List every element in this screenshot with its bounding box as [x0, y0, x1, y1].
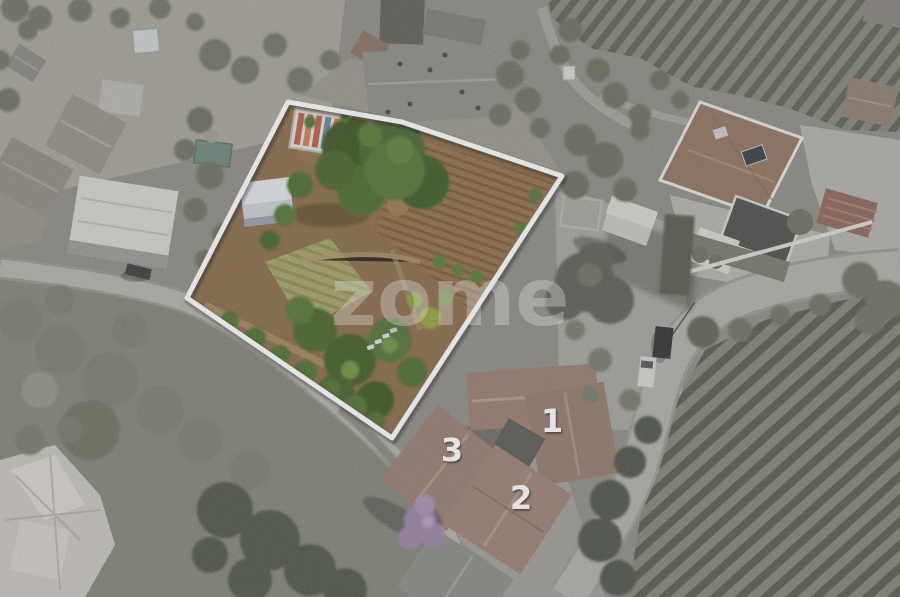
- photo-grain-light: [0, 0, 900, 597]
- aerial-photo: 1 2 3 zome: [0, 0, 900, 597]
